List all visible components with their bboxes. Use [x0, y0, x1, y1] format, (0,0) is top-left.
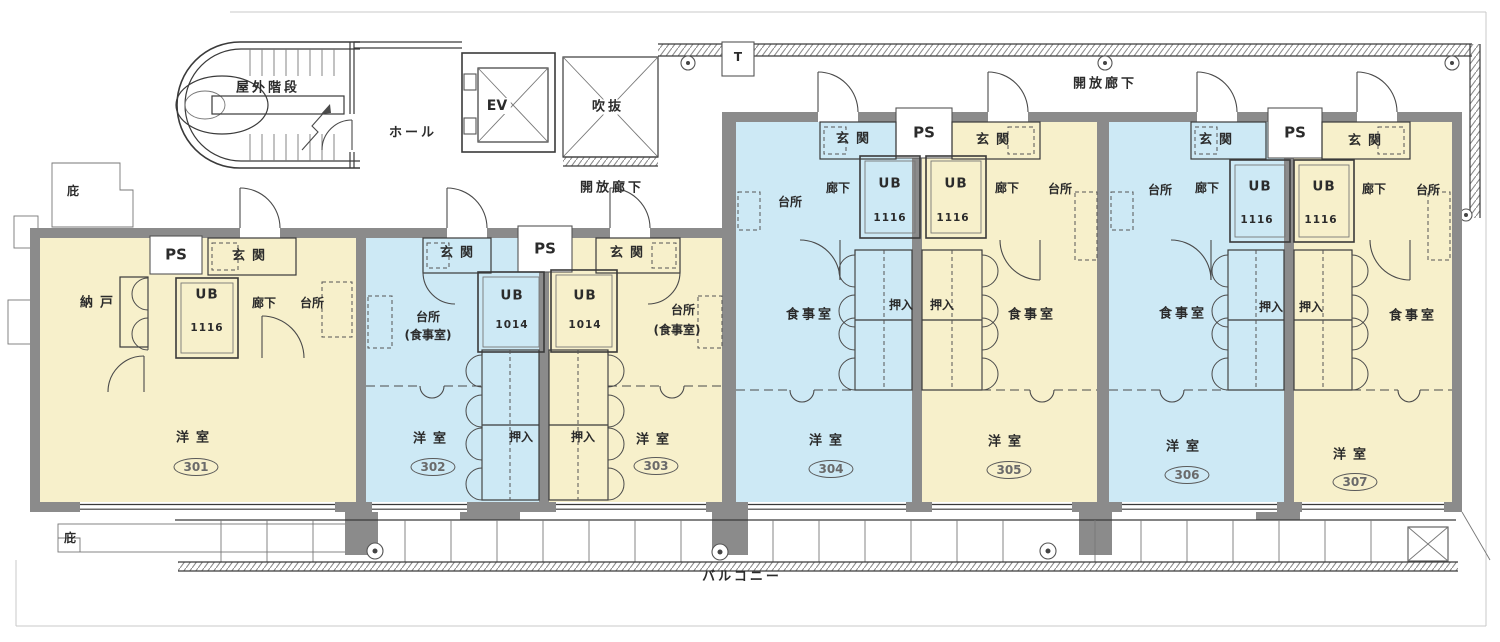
hall-label: ホール: [389, 127, 437, 140]
unit304-room-label: 洋室: [809, 435, 849, 448]
ps-label-2: PS: [534, 242, 556, 257]
unit303-kitchen-label: 台所: [671, 304, 695, 316]
open-corridor-right-label: 開放廊下: [1073, 78, 1137, 91]
ps-label-1: PS: [165, 248, 187, 263]
unit302-kitchen-note: (食事室): [405, 329, 452, 341]
unit307-room-label: 洋室: [1333, 449, 1373, 462]
unit304-hallway-label: 廊下: [826, 182, 850, 194]
unit304-unit-bath-size: 1116: [873, 213, 906, 224]
unit306-number-badge: 306: [1164, 466, 1209, 484]
unit307-unit-bath-size: 1116: [1304, 215, 1337, 226]
unit304-kitchen-label: 台所: [778, 196, 802, 208]
unit301-number-badge: 301: [173, 458, 218, 476]
open-corridor-left-label: 開放廊下: [580, 182, 644, 195]
ps-label-4: PS: [1284, 126, 1306, 141]
unit304-number-badge: 304: [808, 460, 853, 478]
unit307-unit-bath-label: UB: [1312, 180, 1335, 194]
unit306-entrance-label: 玄関: [1199, 134, 1239, 147]
unit307-number-badge: 307: [1332, 473, 1377, 491]
unit301-hallway-label: 廊下: [252, 297, 276, 309]
unit307-closet-label: 押入: [1299, 301, 1323, 313]
unit303-unit-bath-size: 1014: [568, 320, 601, 331]
eaves-top-label: 庇: [67, 185, 79, 197]
unit305-dining-label: 食事室: [1008, 309, 1056, 322]
unit301-unit-bath-label: UB: [195, 288, 218, 302]
unit306-room-label: 洋室: [1166, 441, 1206, 454]
unit304-entrance-label: 玄関: [836, 133, 876, 146]
floorplan-drawing: [0, 0, 1500, 642]
outdoor-stairs-label: 屋外階段: [236, 82, 300, 95]
unit307-entrance-label: 玄関: [1348, 135, 1388, 148]
unit303-unit-bath-label: UB: [573, 289, 596, 303]
unit302-closet-label: 押入: [509, 431, 533, 443]
unit302-room-label: 洋室: [413, 433, 453, 446]
unit302-unit-bath-size: 1014: [495, 320, 528, 331]
unit306-closet-label: 押入: [1259, 301, 1283, 313]
unit301-entrance-label: 玄関: [232, 250, 272, 263]
unit306-unit-bath-label: UB: [1248, 180, 1271, 194]
t-marker-label: T: [734, 51, 742, 63]
unit303-closet-label: 押入: [571, 431, 595, 443]
unit305-closet-label: 押入: [930, 299, 954, 311]
unit305-hallway-label: 廊下: [995, 182, 1019, 194]
unit305-unit-bath-size: 1116: [936, 213, 969, 224]
balcony-label: バルコニー: [702, 571, 782, 584]
unit305-room-label: 洋室: [988, 436, 1028, 449]
unit302-entrance-label: 玄関: [440, 247, 480, 260]
unit304-unit-bath-label: UB: [878, 177, 901, 191]
unit302-kitchen-label: 台所: [416, 311, 440, 323]
unit305-entrance-label: 玄関: [976, 134, 1016, 147]
eaves-bottom-label: 庇: [64, 532, 76, 544]
unit306-dining-label: 食事室: [1159, 308, 1207, 321]
unit303-entrance-label: 玄関: [610, 247, 650, 260]
unit306-unit-bath-size: 1116: [1240, 215, 1273, 226]
unit307-dining-label: 食事室: [1389, 310, 1437, 323]
unit302-unit-bath-label: UB: [500, 289, 523, 303]
unit303-number-badge: 303: [633, 457, 678, 475]
unit304-closet-label: 押入: [889, 299, 913, 311]
floor-plan: 屋外階段 ホール EV 吹抜 開放廊下 開放廊下 バルコニー 庇 庇 T PS …: [0, 0, 1500, 642]
unit303-room-label: 洋室: [636, 434, 676, 447]
unit301-room-label: 洋室: [176, 432, 216, 445]
unit305-kitchen-label: 台所: [1048, 183, 1072, 195]
unit305-number-badge: 305: [986, 461, 1031, 479]
unit304-dining-label: 食事室: [786, 309, 834, 322]
unit301-storage-label: 納戸: [80, 297, 120, 310]
unit305-unit-bath-label: UB: [944, 177, 967, 191]
unit306-kitchen-label: 台所: [1148, 184, 1172, 196]
ps-label-3: PS: [913, 126, 935, 141]
unit306-hallway-label: 廊下: [1195, 182, 1219, 194]
unit307-hallway-label: 廊下: [1362, 183, 1386, 195]
unit301-unit-bath-size: 1116: [190, 323, 223, 334]
unit302-number-badge: 302: [410, 458, 455, 476]
unit307-kitchen-label: 台所: [1416, 184, 1440, 196]
elevator-label: EV: [483, 98, 511, 114]
unit303-kitchen-note: (食事室): [654, 324, 701, 336]
unit301-kitchen-label: 台所: [300, 297, 324, 309]
atrium-label: 吹抜: [588, 100, 628, 115]
